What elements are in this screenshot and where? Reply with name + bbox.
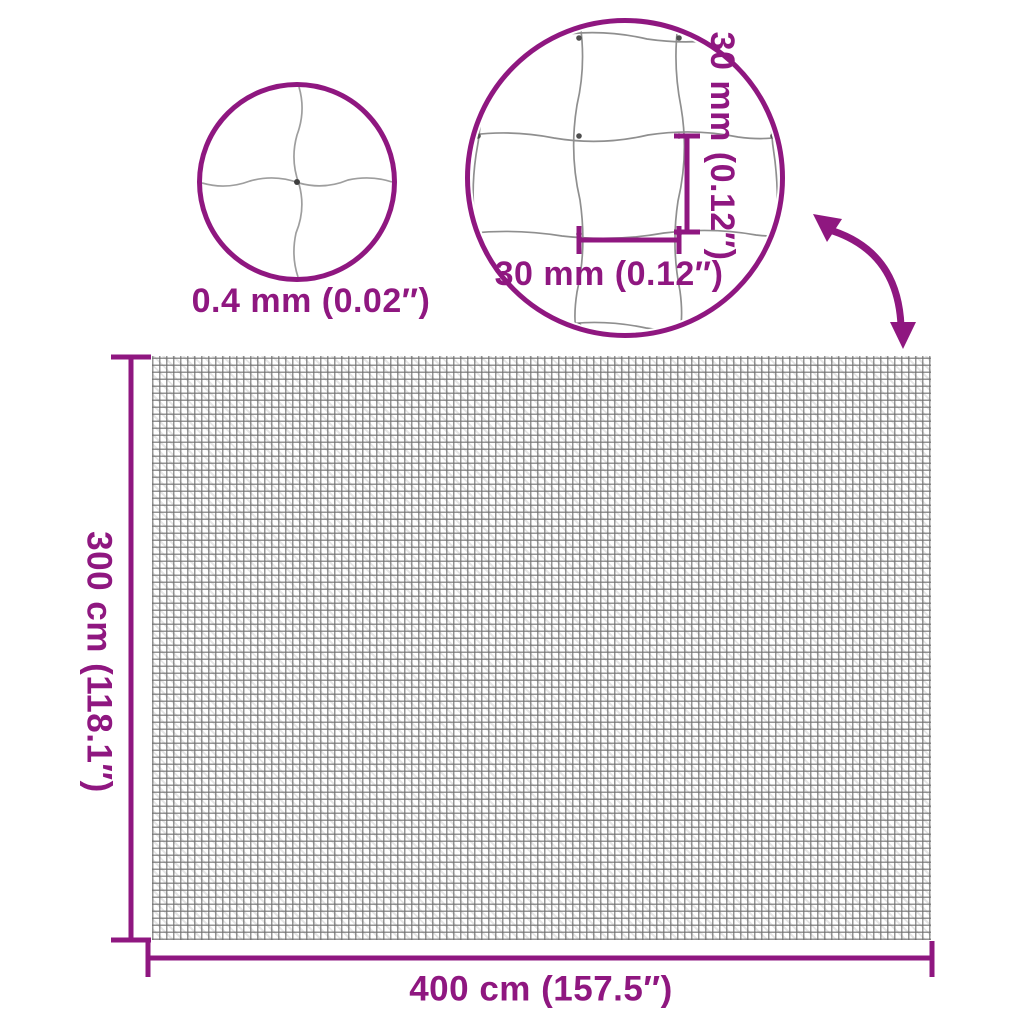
net-height-label: 300 cm (118.1″) <box>82 531 117 793</box>
thread-knot <box>294 179 300 185</box>
thread-cross-graphic <box>202 87 392 277</box>
net-preview <box>152 356 931 940</box>
curved-arrow-icon <box>813 214 916 349</box>
mesh-size-horizontal-label: 30 mm (0.12″) <box>495 257 724 291</box>
mesh-size-vertical-label: 30 mm (0.12″) <box>705 32 739 261</box>
thread-thickness-label: 0.4 mm (0.02″) <box>192 284 431 318</box>
thread-zoom-circle <box>197 82 397 282</box>
product-dimension-diagram: 0.4 mm (0.02″) <box>0 0 1024 1024</box>
net-width-label: 400 cm (157.5″) <box>409 972 673 1007</box>
